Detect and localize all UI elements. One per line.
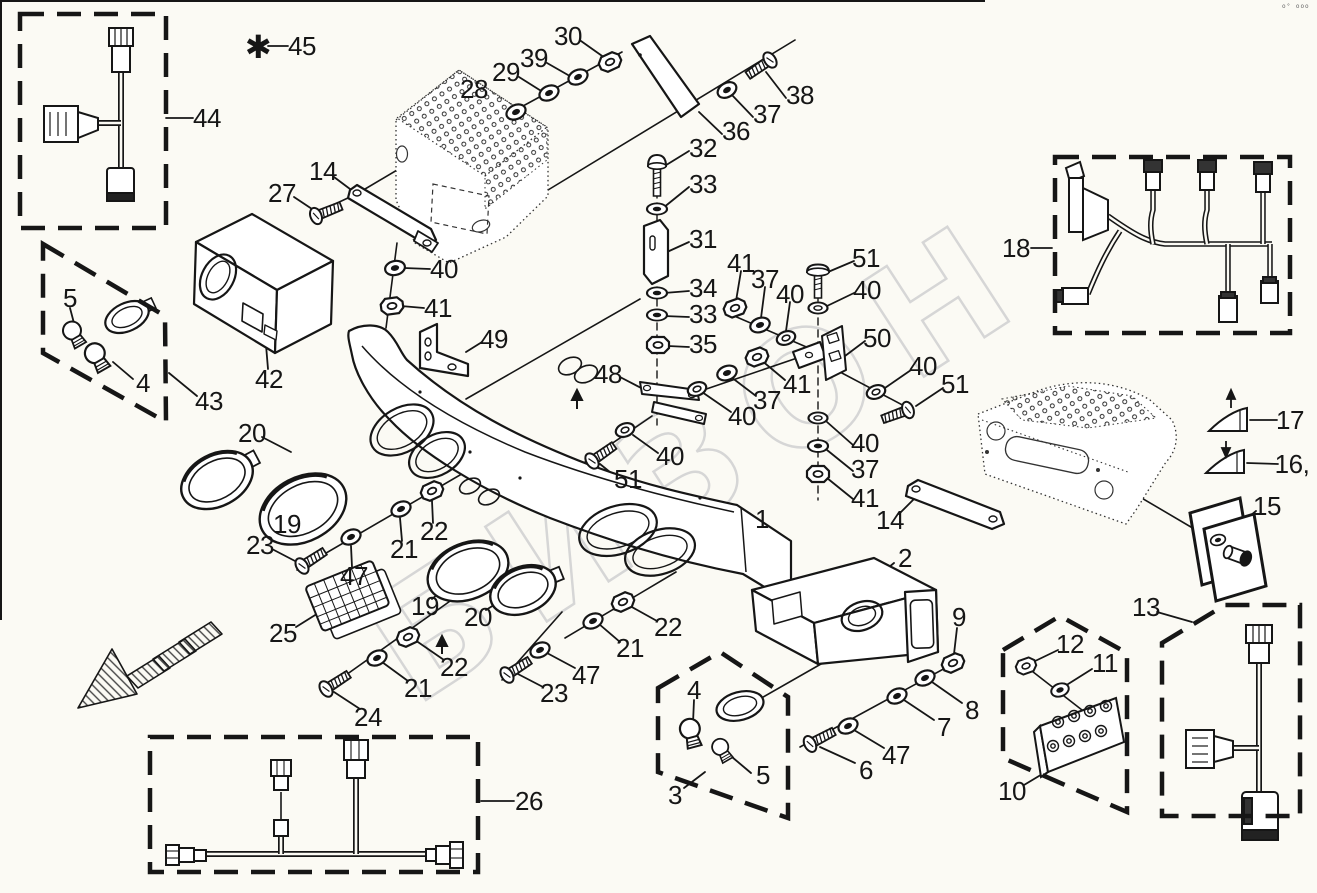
- terminal-block-10: [1034, 698, 1124, 777]
- parts-diagram-canvas: БИЗОН: [0, 0, 1317, 893]
- box-3: [658, 652, 788, 818]
- box-13: [1162, 605, 1300, 816]
- direction-arrow-icon: [78, 622, 222, 708]
- box-43: [43, 244, 166, 422]
- diagram-artwork: БИЗОН: [0, 0, 1317, 893]
- socket-15: [1190, 498, 1266, 601]
- up-arrow-icon: [1227, 390, 1235, 408]
- lamp-20-a: [171, 435, 270, 520]
- cable-13: [1186, 625, 1278, 840]
- wedges: [1206, 390, 1247, 473]
- cable-44: [44, 28, 134, 201]
- grille-panel-right: [978, 383, 1176, 524]
- lamp-housing-42: [193, 214, 333, 353]
- corner-mark: o° ooo: [1282, 3, 1310, 10]
- harness-26: [166, 740, 463, 868]
- harness-18: [1054, 160, 1278, 322]
